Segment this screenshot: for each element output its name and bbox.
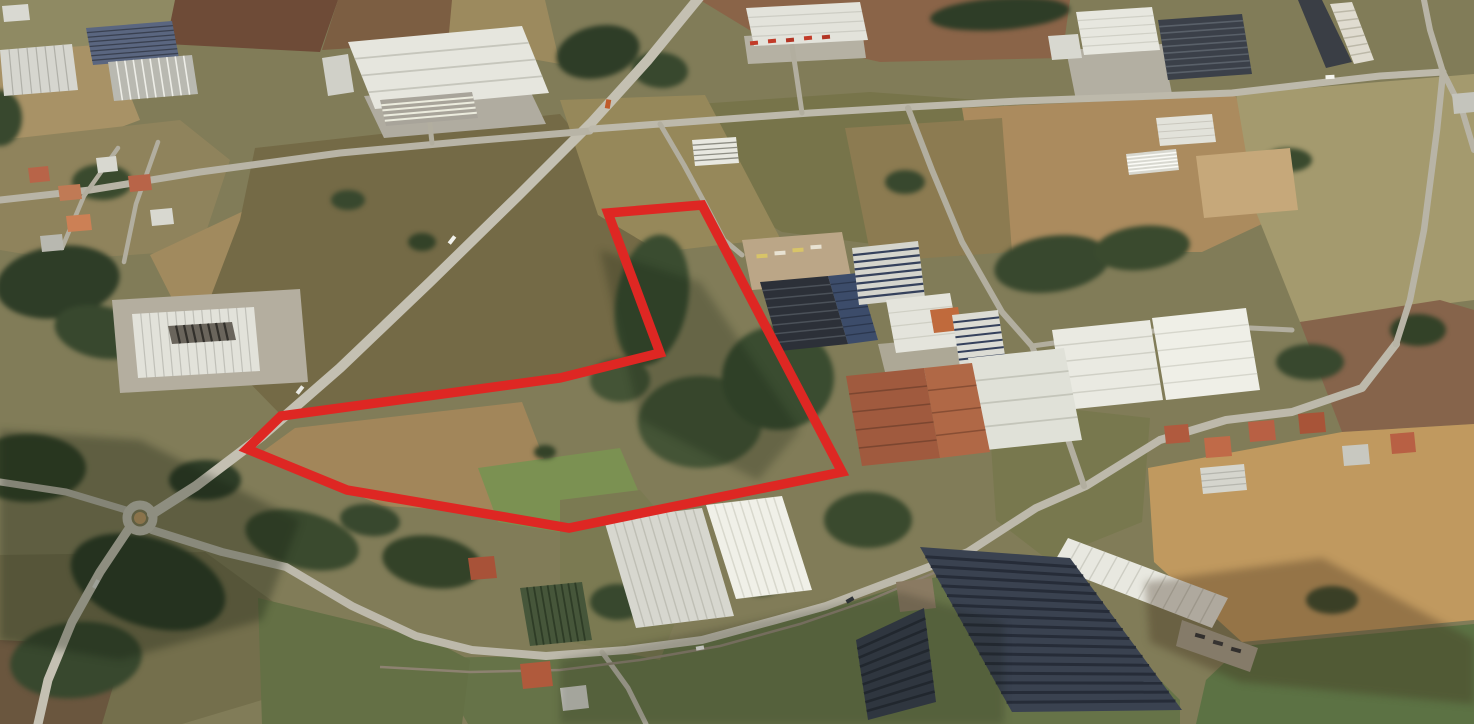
truck-red xyxy=(822,35,830,40)
house xyxy=(1342,444,1370,466)
aerial-imagery xyxy=(0,0,1474,724)
satellite-map-view[interactable] xyxy=(0,0,1474,724)
yard-dirt-lot xyxy=(1196,148,1298,218)
bld-factory-white xyxy=(1076,7,1160,55)
solar-farm-main-stripe xyxy=(990,673,1155,674)
house xyxy=(1204,436,1232,458)
house xyxy=(468,556,497,580)
house xyxy=(58,184,82,201)
truck-white xyxy=(1325,75,1334,79)
house xyxy=(128,174,152,192)
house xyxy=(150,208,174,226)
house xyxy=(1452,92,1474,114)
tree xyxy=(534,445,556,459)
truck-red xyxy=(750,41,758,46)
bld-office xyxy=(692,137,739,166)
lumber-stack xyxy=(774,251,785,256)
tree xyxy=(331,190,365,210)
field-ind-west xyxy=(845,118,1012,262)
house xyxy=(96,156,118,173)
solar-farm-main-stripe xyxy=(1007,701,1176,702)
house xyxy=(520,661,553,689)
field-north-plough xyxy=(166,0,338,52)
tree xyxy=(408,233,436,251)
truck-red xyxy=(768,39,776,44)
lumber-stack xyxy=(810,245,821,250)
tree-cluster xyxy=(824,492,912,548)
house xyxy=(40,234,64,252)
house xyxy=(1164,424,1190,444)
house xyxy=(1248,420,1276,442)
truck-red xyxy=(804,36,812,41)
truck-red xyxy=(786,38,794,43)
bld-factory-annex xyxy=(1048,34,1082,60)
house xyxy=(28,166,50,183)
bld-shed-nw xyxy=(2,4,30,22)
lumber-stack xyxy=(792,248,803,253)
tree-cluster xyxy=(885,170,925,194)
house xyxy=(1390,432,1416,454)
house xyxy=(66,214,92,232)
solar-farm-main-stripe xyxy=(985,663,1149,665)
bld-terracotta-1 xyxy=(846,368,940,466)
house xyxy=(1298,412,1326,434)
tree-cluster xyxy=(1276,344,1344,380)
bld-greenhouse-e2 xyxy=(1152,308,1260,400)
lumber-stack xyxy=(756,254,767,259)
